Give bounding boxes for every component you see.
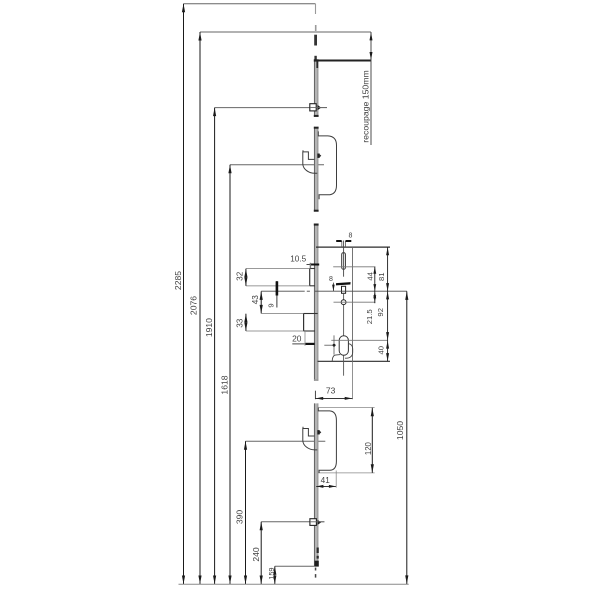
svg-text:44: 44 — [365, 271, 374, 280]
svg-text:10.5: 10.5 — [290, 254, 306, 263]
svg-text:33: 33 — [236, 318, 245, 328]
svg-text:41: 41 — [321, 476, 331, 485]
svg-text:159: 159 — [267, 567, 276, 579]
svg-text:43: 43 — [251, 295, 260, 305]
svg-text:240: 240 — [251, 547, 261, 562]
svg-text:40: 40 — [376, 346, 385, 355]
svg-text:20: 20 — [292, 333, 302, 343]
svg-text:21.5: 21.5 — [365, 309, 374, 324]
svg-text:2076: 2076 — [188, 296, 198, 315]
svg-text:81: 81 — [377, 272, 386, 281]
svg-text:73: 73 — [326, 385, 336, 395]
svg-text:1910: 1910 — [204, 318, 214, 337]
svg-text:9: 9 — [267, 303, 276, 307]
svg-text:32: 32 — [236, 271, 245, 281]
svg-text:8: 8 — [348, 233, 352, 240]
svg-text:92: 92 — [376, 308, 385, 317]
svg-text:120: 120 — [364, 441, 373, 455]
svg-text:1618: 1618 — [219, 375, 229, 394]
svg-text:8: 8 — [329, 276, 333, 283]
svg-text:recoupage 150mm: recoupage 150mm — [361, 70, 370, 143]
svg-text:1050: 1050 — [395, 421, 405, 440]
svg-text:2285: 2285 — [173, 271, 183, 290]
svg-text:390: 390 — [234, 510, 244, 525]
